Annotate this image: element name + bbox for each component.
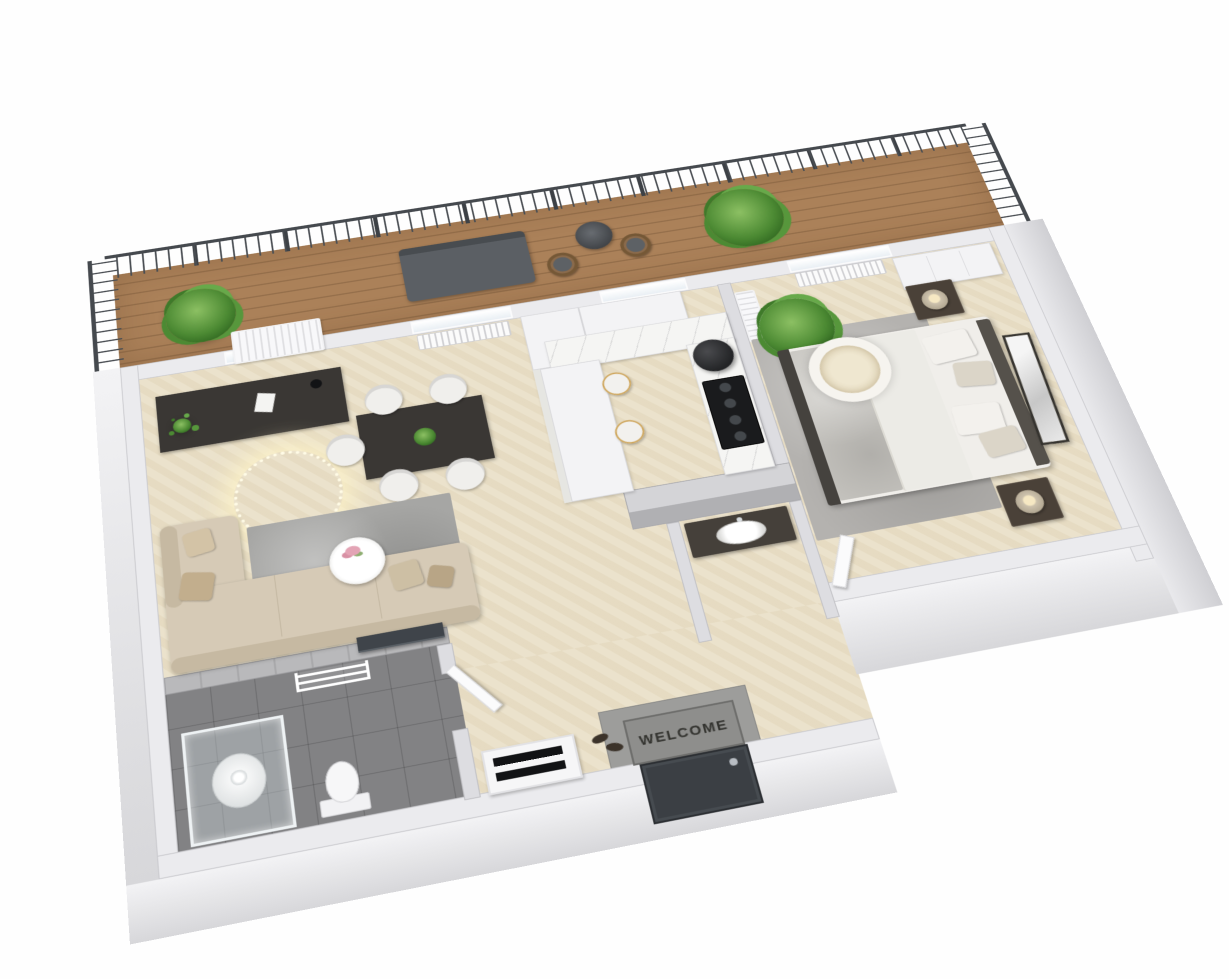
sofa-pillow-4	[426, 564, 455, 587]
bed-pillow-3	[951, 360, 996, 387]
apartment-3d-scene: WELCOME	[110, 114, 1225, 927]
chair-cushion	[624, 236, 646, 253]
apartment-plan: WELCOME	[112, 142, 1205, 877]
sink-tap	[735, 516, 742, 522]
welcome-mat-text: WELCOME	[637, 716, 729, 748]
door-handle	[728, 757, 738, 766]
shower-enclosure	[181, 714, 297, 847]
chair-cushion	[551, 255, 573, 272]
desk-lamp	[309, 378, 322, 389]
shoe-2	[605, 742, 623, 751]
table-centerpiece	[412, 426, 437, 447]
flower-vase	[344, 544, 361, 556]
desk-plant	[172, 417, 192, 434]
desk-papers	[254, 393, 275, 412]
bed-pillow-1	[920, 328, 978, 365]
floor-plan-render: WELCOME	[0, 0, 1229, 979]
sofa-pillow-1	[178, 572, 215, 600]
